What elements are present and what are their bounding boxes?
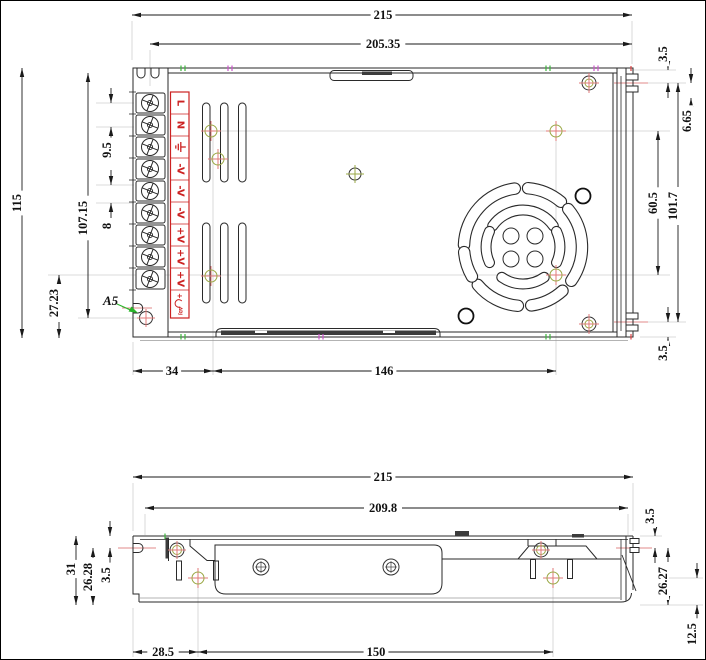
- terminal-screw: [136, 158, 165, 180]
- top-tab-mark: [362, 72, 392, 76]
- dim-label-group: 3.5: [99, 563, 113, 588]
- terminal-screw: [136, 224, 165, 246]
- dim-label-group: 209.8: [364, 501, 402, 515]
- fan-slot: [486, 231, 489, 262]
- dim-label-group: 101.7: [666, 187, 680, 225]
- power-supply-dimension-drawing: LN-V-V-V+V+V+V+ADJ 215205.3534146215209.…: [0, 0, 706, 660]
- callout-label: A5: [102, 293, 119, 308]
- terminal-label: +V: [174, 249, 185, 265]
- terminal-screw: [136, 114, 165, 136]
- bottom-tab-gap: [383, 331, 395, 333]
- dim-label: 101.7: [666, 192, 680, 220]
- dim-label: 26.27: [656, 567, 670, 595]
- dim-label: 115: [10, 194, 24, 212]
- terminal-label: -V: [174, 163, 185, 174]
- dim-label-group: 215: [371, 8, 396, 22]
- dim-label-group: 60.5: [646, 187, 660, 218]
- dim-label-group: 28.5: [147, 645, 178, 659]
- dim-label-group: 6.65: [680, 105, 694, 136]
- terminal-screw: [136, 202, 165, 224]
- seam-mark: [572, 534, 584, 538]
- terminal-block: LN-V-V-V+V+V+V+ADJ: [129, 92, 189, 318]
- dim-label-group: 115: [10, 191, 24, 216]
- bracket-tooth: [626, 86, 638, 92]
- dim-label-group: 205.35: [361, 37, 406, 51]
- bracket-tooth: [626, 313, 638, 319]
- dim-label-group: 3.5: [656, 341, 670, 366]
- dim-label: 215: [374, 470, 393, 484]
- dim-label-group: 215: [371, 470, 396, 484]
- dim-label: 26.28: [81, 563, 95, 591]
- bracket-tooth: [626, 74, 638, 80]
- dim-label: 3.5: [643, 508, 657, 524]
- dim-label: 205.35: [366, 37, 400, 51]
- dim-label-group: 12.5: [685, 618, 699, 649]
- dim-label: 3.5: [99, 567, 113, 583]
- bracket-tooth: [626, 325, 638, 331]
- terminal-screw: [136, 180, 165, 202]
- dim-label-group: 26.28: [81, 558, 95, 596]
- terminal-screw: [136, 246, 165, 268]
- dim-label: 8: [100, 223, 114, 229]
- terminal-label: -V: [174, 185, 185, 196]
- terminal-screw: [136, 268, 165, 290]
- dim-label: 215: [374, 8, 393, 22]
- dim-label-group: 31: [64, 560, 78, 578]
- dim-label-group: 9.5: [100, 138, 114, 163]
- dim-label: 146: [375, 364, 394, 378]
- dim-label: 3.5: [656, 46, 670, 62]
- bracket-tooth: [630, 539, 639, 544]
- page-border: [1, 1, 706, 660]
- bottom-tab-gap: [255, 331, 267, 333]
- terminal-screw: [136, 136, 165, 158]
- terminal-label: +V: [174, 271, 185, 287]
- dim-label: 9.5: [100, 142, 114, 158]
- dim-label-group: 146: [372, 364, 397, 378]
- dim-label: 60.5: [646, 192, 660, 214]
- bottom-tab-bar: [221, 331, 436, 336]
- seam-mark: [455, 531, 469, 536]
- technical-drawing-page: LN-V-V-V+V+V+V+ADJ 215205.3534146215209.…: [0, 0, 706, 660]
- dim-label-group: 107.15: [76, 196, 90, 241]
- dim-label: 3.5: [656, 345, 670, 361]
- dim-label: 6.65: [680, 110, 694, 132]
- dim-label-group: 3.5: [656, 42, 670, 67]
- dim-label: 107.15: [76, 201, 90, 235]
- dim-label-group: 8: [100, 220, 114, 232]
- dim-label-group: 150: [364, 645, 389, 659]
- terminal-label: L: [174, 100, 185, 107]
- dim-label: 34: [166, 364, 179, 378]
- terminal-screw: [136, 92, 165, 114]
- dim-label-group: 27.23: [47, 284, 61, 322]
- adj-plus: +: [175, 293, 183, 299]
- dim-label-group: 3.5: [643, 504, 657, 529]
- dim-label: 209.8: [369, 501, 397, 515]
- dim-label: 150: [367, 645, 386, 659]
- dim-label: 27.23: [47, 289, 61, 317]
- dim-label-group: 26.27: [656, 562, 670, 600]
- terminal-label: N: [174, 121, 185, 129]
- adj-label: ADJ: [178, 307, 183, 315]
- dim-label: 31: [64, 563, 78, 576]
- fan-slot: [557, 231, 560, 262]
- bracket-tooth: [630, 548, 639, 553]
- terminal-label: -V: [174, 207, 185, 218]
- terminal-label: +V: [174, 227, 185, 243]
- dim-label: 28.5: [152, 645, 174, 659]
- dim-label: 12.5: [685, 623, 699, 645]
- dim-label-group: 34: [163, 364, 181, 378]
